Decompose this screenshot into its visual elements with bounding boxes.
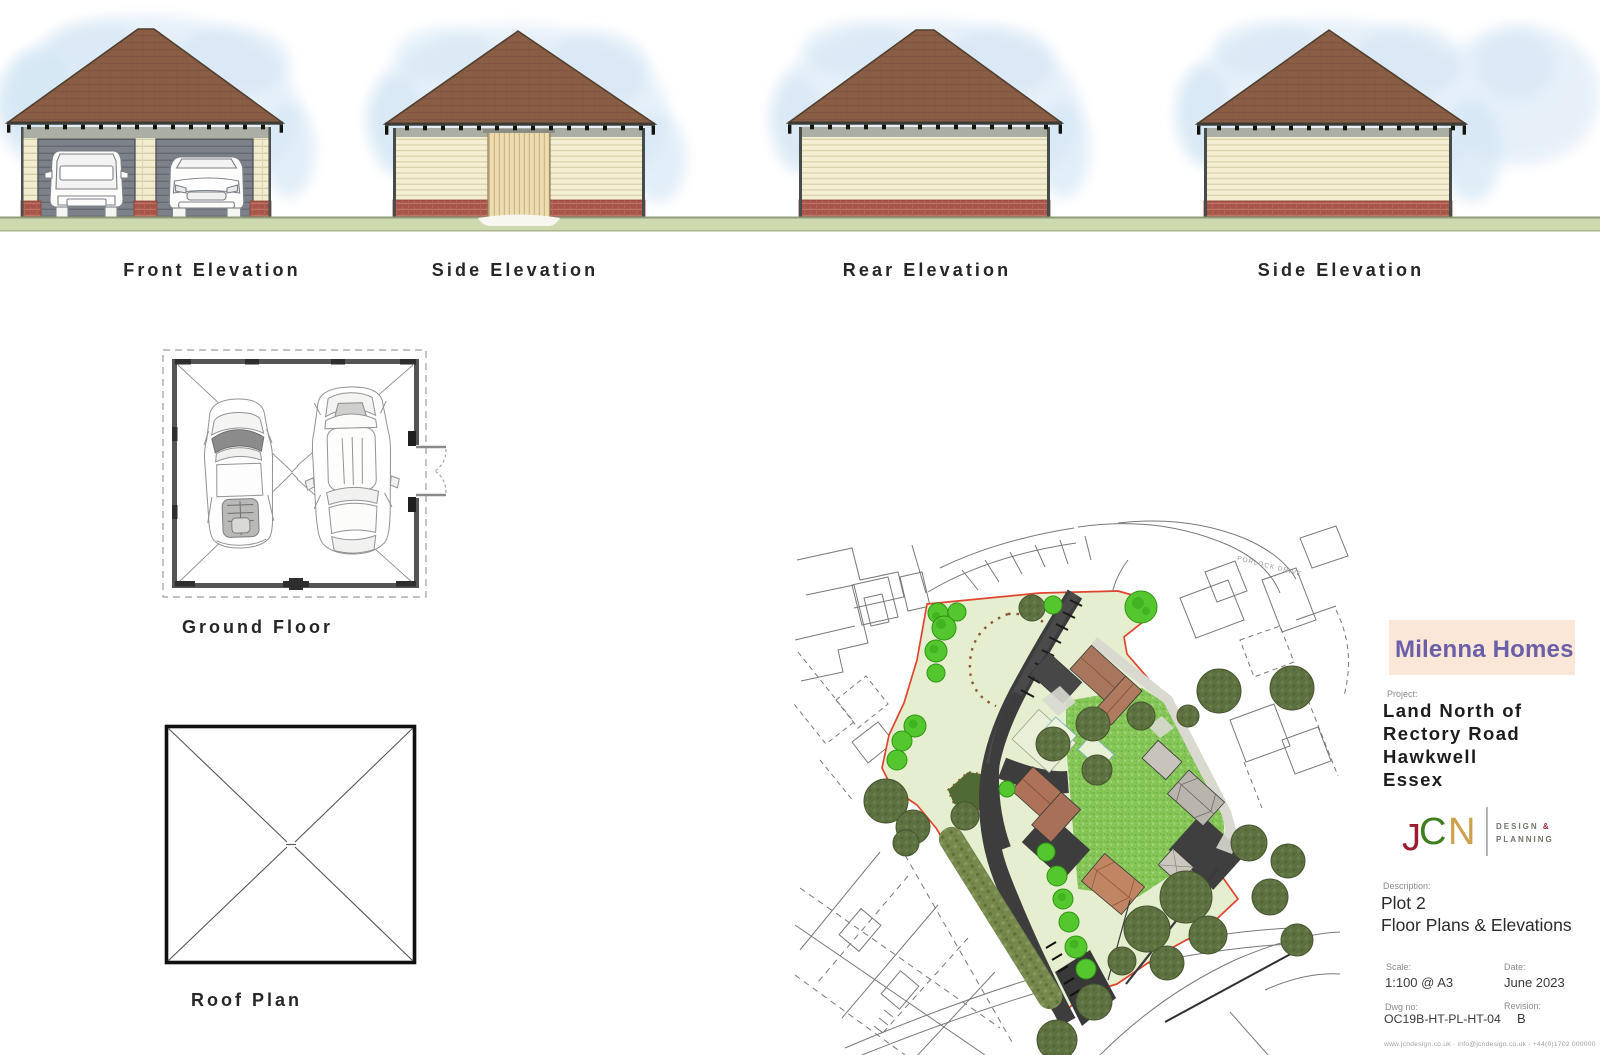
svg-text:Essex: Essex <box>1383 769 1444 790</box>
svg-text:Floor Plans & Elevations: Floor Plans & Elevations <box>1381 915 1572 935</box>
svg-text:Revision:: Revision: <box>1504 1001 1541 1011</box>
svg-text:Ground Floor: Ground Floor <box>182 617 333 637</box>
svg-text:Scale:: Scale: <box>1386 962 1411 972</box>
svg-text:Side Elevation: Side Elevation <box>1258 260 1424 280</box>
svg-text:Plot 2: Plot 2 <box>1381 893 1426 913</box>
svg-text:1:100 @ A3: 1:100 @ A3 <box>1385 975 1453 990</box>
svg-text:www.jcndesign.co.uk · info@j: www.jcndesign.co.uk · info@jcndesign.co.… <box>1383 1041 1596 1048</box>
svg-text:Project:: Project: <box>1387 689 1418 699</box>
svg-text:Rear Elevation: Rear Elevation <box>843 260 1011 280</box>
svg-text:B: B <box>1517 1011 1526 1026</box>
svg-text:Hawkwell: Hawkwell <box>1383 746 1478 767</box>
svg-text:Side Elevation: Side Elevation <box>432 260 598 280</box>
svg-text:Front Elevation: Front Elevation <box>123 260 301 280</box>
svg-text:DESIGN &: DESIGN & <box>1496 822 1551 831</box>
svg-text:Roof Plan: Roof Plan <box>191 990 302 1010</box>
svg-text:N: N <box>1448 811 1475 853</box>
svg-text:Rectory Road: Rectory Road <box>1383 723 1520 744</box>
svg-text:June 2023: June 2023 <box>1504 975 1565 990</box>
svg-text:C: C <box>1419 811 1446 853</box>
svg-text:Description:: Description: <box>1383 881 1431 891</box>
svg-text:Date:: Date: <box>1504 962 1526 972</box>
svg-text:Milenna Homes: Milenna Homes <box>1395 636 1574 663</box>
svg-text:OC19B-HT-PL-HT-04: OC19B-HT-PL-HT-04 <box>1384 1012 1501 1026</box>
svg-text:Land North of: Land North of <box>1383 700 1522 721</box>
svg-text:PLANNING: PLANNING <box>1496 835 1554 844</box>
svg-text:Dwg no:: Dwg no: <box>1385 1002 1418 1012</box>
